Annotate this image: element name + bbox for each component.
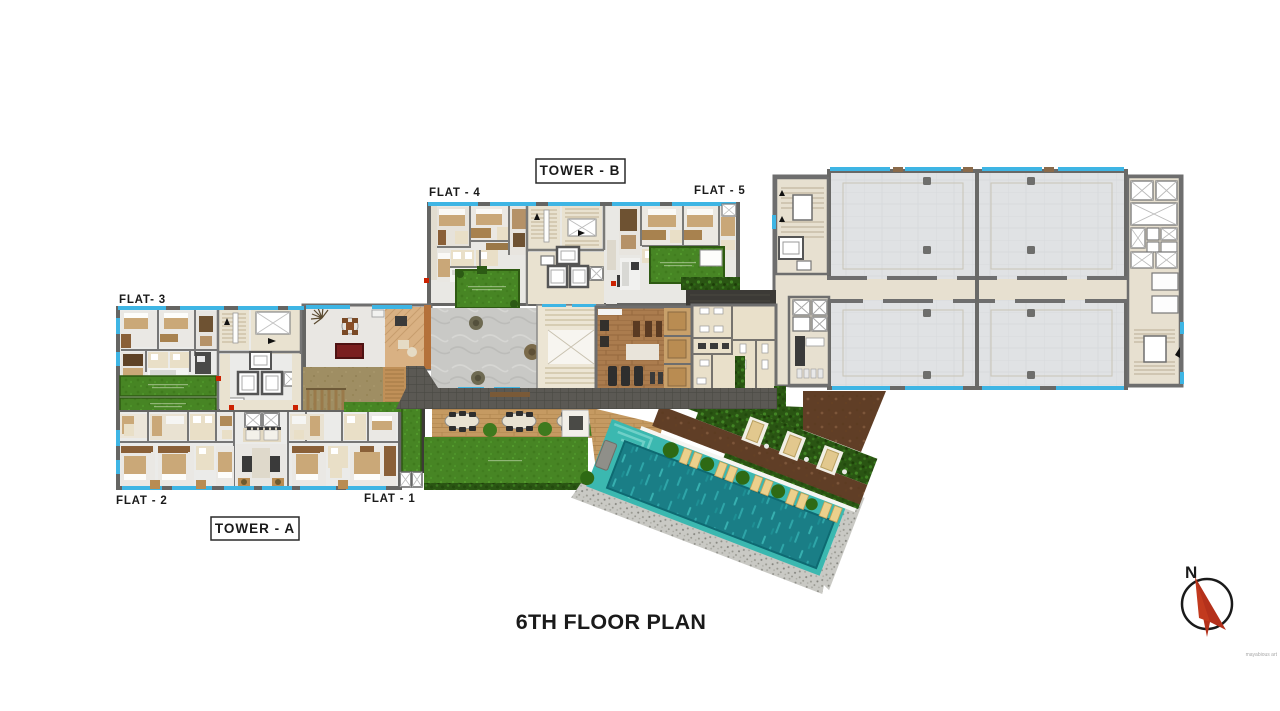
svg-text:6TH FLOOR PLAN: 6TH FLOOR PLAN xyxy=(516,610,707,634)
svg-text:TOWER - A: TOWER - A xyxy=(215,521,295,536)
svg-text:FLAT - 4: FLAT - 4 xyxy=(429,187,481,199)
svg-text:FLAT - 2: FLAT - 2 xyxy=(116,495,168,507)
svg-text:FLAT - 1: FLAT - 1 xyxy=(364,493,416,505)
svg-text:mayabious art: mayabious art xyxy=(1246,652,1278,658)
svg-text:FLAT - 5: FLAT - 5 xyxy=(694,185,746,197)
svg-text:FLAT- 3: FLAT- 3 xyxy=(119,294,166,306)
svg-text:TOWER - B: TOWER - B xyxy=(540,163,621,178)
